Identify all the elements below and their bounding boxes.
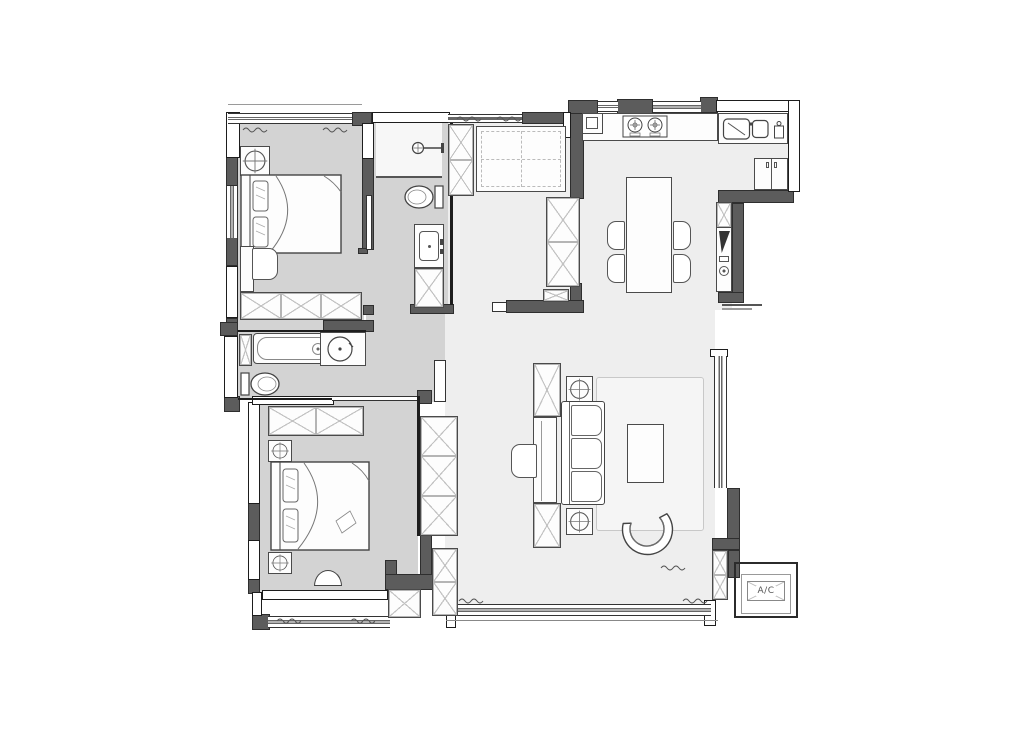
shoe-cabinet bbox=[448, 124, 474, 196]
door-leaf bbox=[434, 360, 446, 402]
media-cabinet-lower bbox=[533, 503, 561, 548]
sliding-door bbox=[332, 396, 418, 401]
media-cabinet-upper bbox=[533, 363, 561, 417]
dining-chair bbox=[607, 221, 625, 250]
round-basin bbox=[326, 335, 354, 363]
ac-label-wrap: A/C bbox=[748, 582, 784, 600]
wall-segment bbox=[248, 540, 260, 580]
faucet bbox=[440, 249, 444, 254]
hatch bbox=[713, 575, 727, 599]
console-line bbox=[541, 421, 542, 501]
lamp-symbol bbox=[269, 553, 291, 573]
wall-segment bbox=[712, 538, 740, 550]
wall-segment bbox=[372, 112, 450, 123]
cabinet bbox=[432, 548, 458, 616]
lamp-symbol bbox=[241, 147, 269, 175]
ac-label: A/C bbox=[756, 586, 777, 596]
vanity bbox=[414, 224, 444, 268]
wall-segment bbox=[568, 100, 598, 114]
wall-segment bbox=[248, 502, 260, 542]
sliding-window bbox=[455, 604, 711, 616]
wall-segment bbox=[226, 236, 238, 266]
nightstand bbox=[268, 552, 292, 574]
cooktop bbox=[622, 115, 668, 140]
floor-dining bbox=[448, 192, 732, 310]
bay-window-sill bbox=[262, 590, 388, 600]
sofa-cushion bbox=[571, 405, 602, 436]
window bbox=[228, 113, 352, 124]
window bbox=[598, 101, 618, 112]
dining-chair bbox=[673, 221, 691, 250]
hatch bbox=[421, 417, 457, 456]
break-line bbox=[660, 564, 686, 571]
wardrobe bbox=[420, 416, 458, 536]
fridge-handle bbox=[774, 162, 777, 168]
wall-segment bbox=[732, 203, 744, 295]
break-line bbox=[350, 617, 376, 624]
hatch bbox=[241, 293, 281, 319]
floor-plan: A/C bbox=[0, 0, 1028, 741]
break-line bbox=[242, 126, 268, 133]
fridge-door-split bbox=[771, 159, 772, 189]
door-leaf bbox=[366, 195, 372, 250]
ac-unit-box: A/C bbox=[747, 581, 785, 601]
sofa-cushion bbox=[571, 438, 602, 469]
lamp-symbol bbox=[269, 441, 291, 461]
dining-chair bbox=[673, 254, 691, 283]
hatch bbox=[713, 551, 727, 575]
hatch bbox=[321, 293, 361, 319]
shower-glass-line bbox=[376, 176, 442, 178]
wall-segment bbox=[718, 292, 744, 303]
hatch bbox=[240, 335, 251, 365]
bench-dash-line bbox=[481, 159, 561, 160]
cabinet bbox=[239, 334, 252, 366]
wardrobe bbox=[268, 406, 364, 436]
wall-segment bbox=[362, 123, 374, 159]
refrigerator bbox=[754, 158, 788, 190]
break-line bbox=[322, 126, 348, 133]
hatch bbox=[389, 590, 420, 617]
side-table bbox=[566, 508, 593, 535]
plant-symbol bbox=[567, 509, 592, 534]
wall-segment bbox=[788, 100, 800, 192]
break-line bbox=[276, 617, 302, 624]
coffee-table bbox=[627, 424, 664, 483]
side-table bbox=[566, 376, 593, 403]
flue-inner bbox=[586, 117, 598, 129]
tall-cabinet bbox=[546, 197, 580, 287]
balcony-cabinet bbox=[388, 589, 421, 618]
hatch bbox=[316, 407, 363, 435]
storage-bench bbox=[476, 126, 566, 192]
nightstand bbox=[268, 440, 292, 462]
hatch bbox=[421, 456, 457, 495]
cabinet bbox=[543, 289, 569, 302]
hatch bbox=[534, 364, 560, 416]
wall-segment bbox=[385, 574, 433, 590]
double-bed bbox=[270, 461, 370, 551]
wall-segment bbox=[220, 322, 238, 336]
accent-chair bbox=[511, 444, 537, 478]
sofa-back bbox=[562, 402, 570, 504]
window bbox=[653, 101, 701, 113]
appliance-dial bbox=[719, 266, 729, 276]
outer-line bbox=[228, 104, 362, 105]
hatch bbox=[544, 290, 568, 301]
break-line bbox=[682, 597, 708, 604]
double-bed bbox=[240, 174, 342, 254]
hatch bbox=[449, 125, 473, 160]
curtain-box-line bbox=[722, 304, 762, 306]
toilet bbox=[240, 370, 282, 398]
hatch bbox=[415, 269, 443, 307]
appliance-column-top bbox=[716, 202, 732, 228]
wall-segment bbox=[252, 592, 262, 616]
hatch bbox=[717, 203, 731, 227]
shower-head bbox=[410, 139, 446, 157]
hatch bbox=[281, 293, 321, 319]
hatch bbox=[534, 504, 560, 547]
vanity-drain bbox=[428, 245, 431, 248]
dining-table bbox=[626, 177, 672, 293]
wall-segment bbox=[224, 336, 238, 398]
hatch bbox=[449, 160, 473, 195]
break-line bbox=[496, 115, 522, 122]
sofa-cushion bbox=[571, 471, 602, 502]
wall-segment bbox=[716, 100, 790, 112]
sofa bbox=[561, 401, 605, 505]
plant-symbol bbox=[567, 377, 592, 402]
hatch bbox=[421, 496, 457, 535]
desk-chair bbox=[252, 248, 278, 280]
fridge-handle bbox=[766, 162, 769, 168]
wardrobe bbox=[240, 292, 362, 320]
cabinet bbox=[712, 550, 728, 600]
hatch bbox=[547, 198, 579, 242]
wall-segment bbox=[226, 266, 238, 318]
curtain-box-line bbox=[722, 308, 752, 310]
toilet bbox=[402, 183, 444, 211]
door-leaf bbox=[492, 302, 507, 312]
bathroom-cabinet bbox=[414, 268, 444, 308]
nightstand bbox=[240, 146, 270, 176]
dining-chair bbox=[607, 254, 625, 283]
hatch bbox=[269, 407, 316, 435]
outer-line bbox=[446, 620, 718, 621]
wall-segment bbox=[522, 112, 568, 124]
hatch bbox=[547, 242, 579, 286]
window bbox=[714, 356, 727, 488]
wall-segment bbox=[727, 488, 740, 540]
hatch bbox=[433, 582, 457, 615]
faucet bbox=[440, 239, 444, 245]
window bbox=[226, 186, 238, 238]
wall-segment bbox=[363, 305, 374, 315]
break-line bbox=[456, 115, 482, 122]
oven-handle bbox=[719, 256, 729, 262]
water-purifier bbox=[772, 120, 786, 140]
hatch bbox=[433, 549, 457, 582]
break-line bbox=[458, 597, 484, 604]
wall-segment bbox=[248, 402, 260, 504]
kitchen-sink bbox=[722, 116, 770, 142]
wall-segment bbox=[226, 156, 238, 186]
